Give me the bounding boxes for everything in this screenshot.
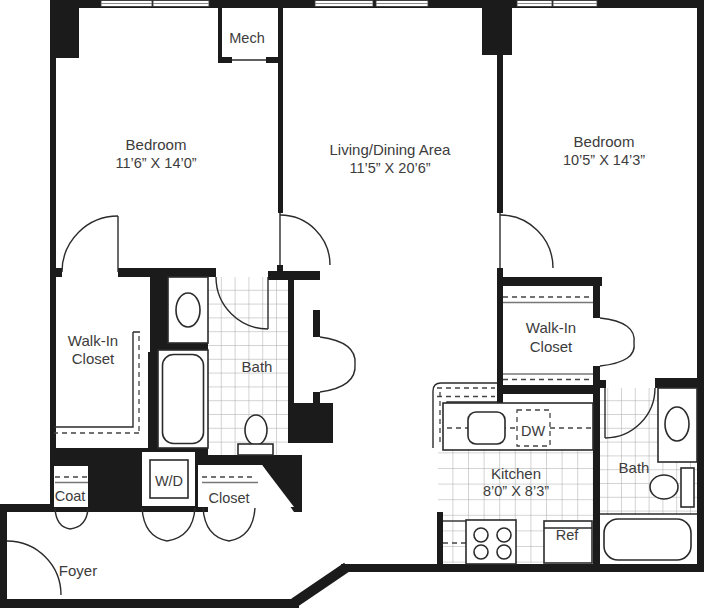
kitchen-dims: 8’0” X 8’3” [483,483,549,499]
door-arcs-hall-closet [203,508,255,541]
bath-2-label: Bath [619,459,650,476]
pier-top-left [50,0,79,58]
window-icon [315,1,373,7]
bathtub-icon [600,514,697,560]
walkin-closet-1-label-line1: Walk-In [68,332,118,349]
kitchen-sink-icon [468,412,505,444]
bath-1-label: Bath [242,358,273,375]
door-arc-walkin-closet-1 [62,216,118,272]
bedroom-1-label: Bedroom [126,136,187,153]
mech-label: Mech [229,30,264,46]
kitchen-label: Kitchen [491,465,541,482]
door-arc-entry [7,541,61,595]
coat-label: Coat [55,488,86,504]
door-arc-bedroom-1 [280,213,330,265]
living-dining-label: Living/Dining Area [330,141,452,158]
living-dining-dims: 11’5” X 20’6” [349,160,430,176]
refrigerator-label: Ref [556,527,580,543]
shaft [288,403,333,443]
window-icon [101,1,152,7]
wd-label: W/D [155,473,183,489]
window-icon [376,1,428,7]
door-arcs-linen-closet [320,337,355,392]
floorplan-drawing: Mech Bedroom 11’6” X 14’0” Living/Dining… [0,0,704,608]
window-icon [553,1,597,7]
closet-label: Closet [208,490,249,506]
pier-top-middle [482,0,512,55]
walkin-closet-2-label-line1: Walk-In [526,319,576,336]
door-arc-bedroom-2 [500,213,553,268]
door-arcs-walkin-closet-2 [600,318,634,366]
foyer-label: Foyer [59,562,97,579]
window-icon [517,1,552,7]
walkin-closet-1-label-line2: Closet [72,350,115,367]
door-arcs-wd-closet [142,508,195,541]
window-icon [153,1,209,7]
windows [101,1,597,7]
dishwasher-label: DW [521,423,545,439]
sink-icon [168,277,208,343]
bedroom-2-label: Bedroom [574,133,635,150]
floorplan: Mech Bedroom 11’6” X 14’0” Living/Dining… [0,0,704,608]
walkin-closet-2-label-line2: Closet [530,338,573,355]
bedroom-1-dims: 11’6” X 14’0” [115,155,196,171]
bathtub-icon [158,350,208,448]
bedroom-2-dims: 10’5” X 14’3” [563,152,645,168]
sink-icon [658,388,697,462]
